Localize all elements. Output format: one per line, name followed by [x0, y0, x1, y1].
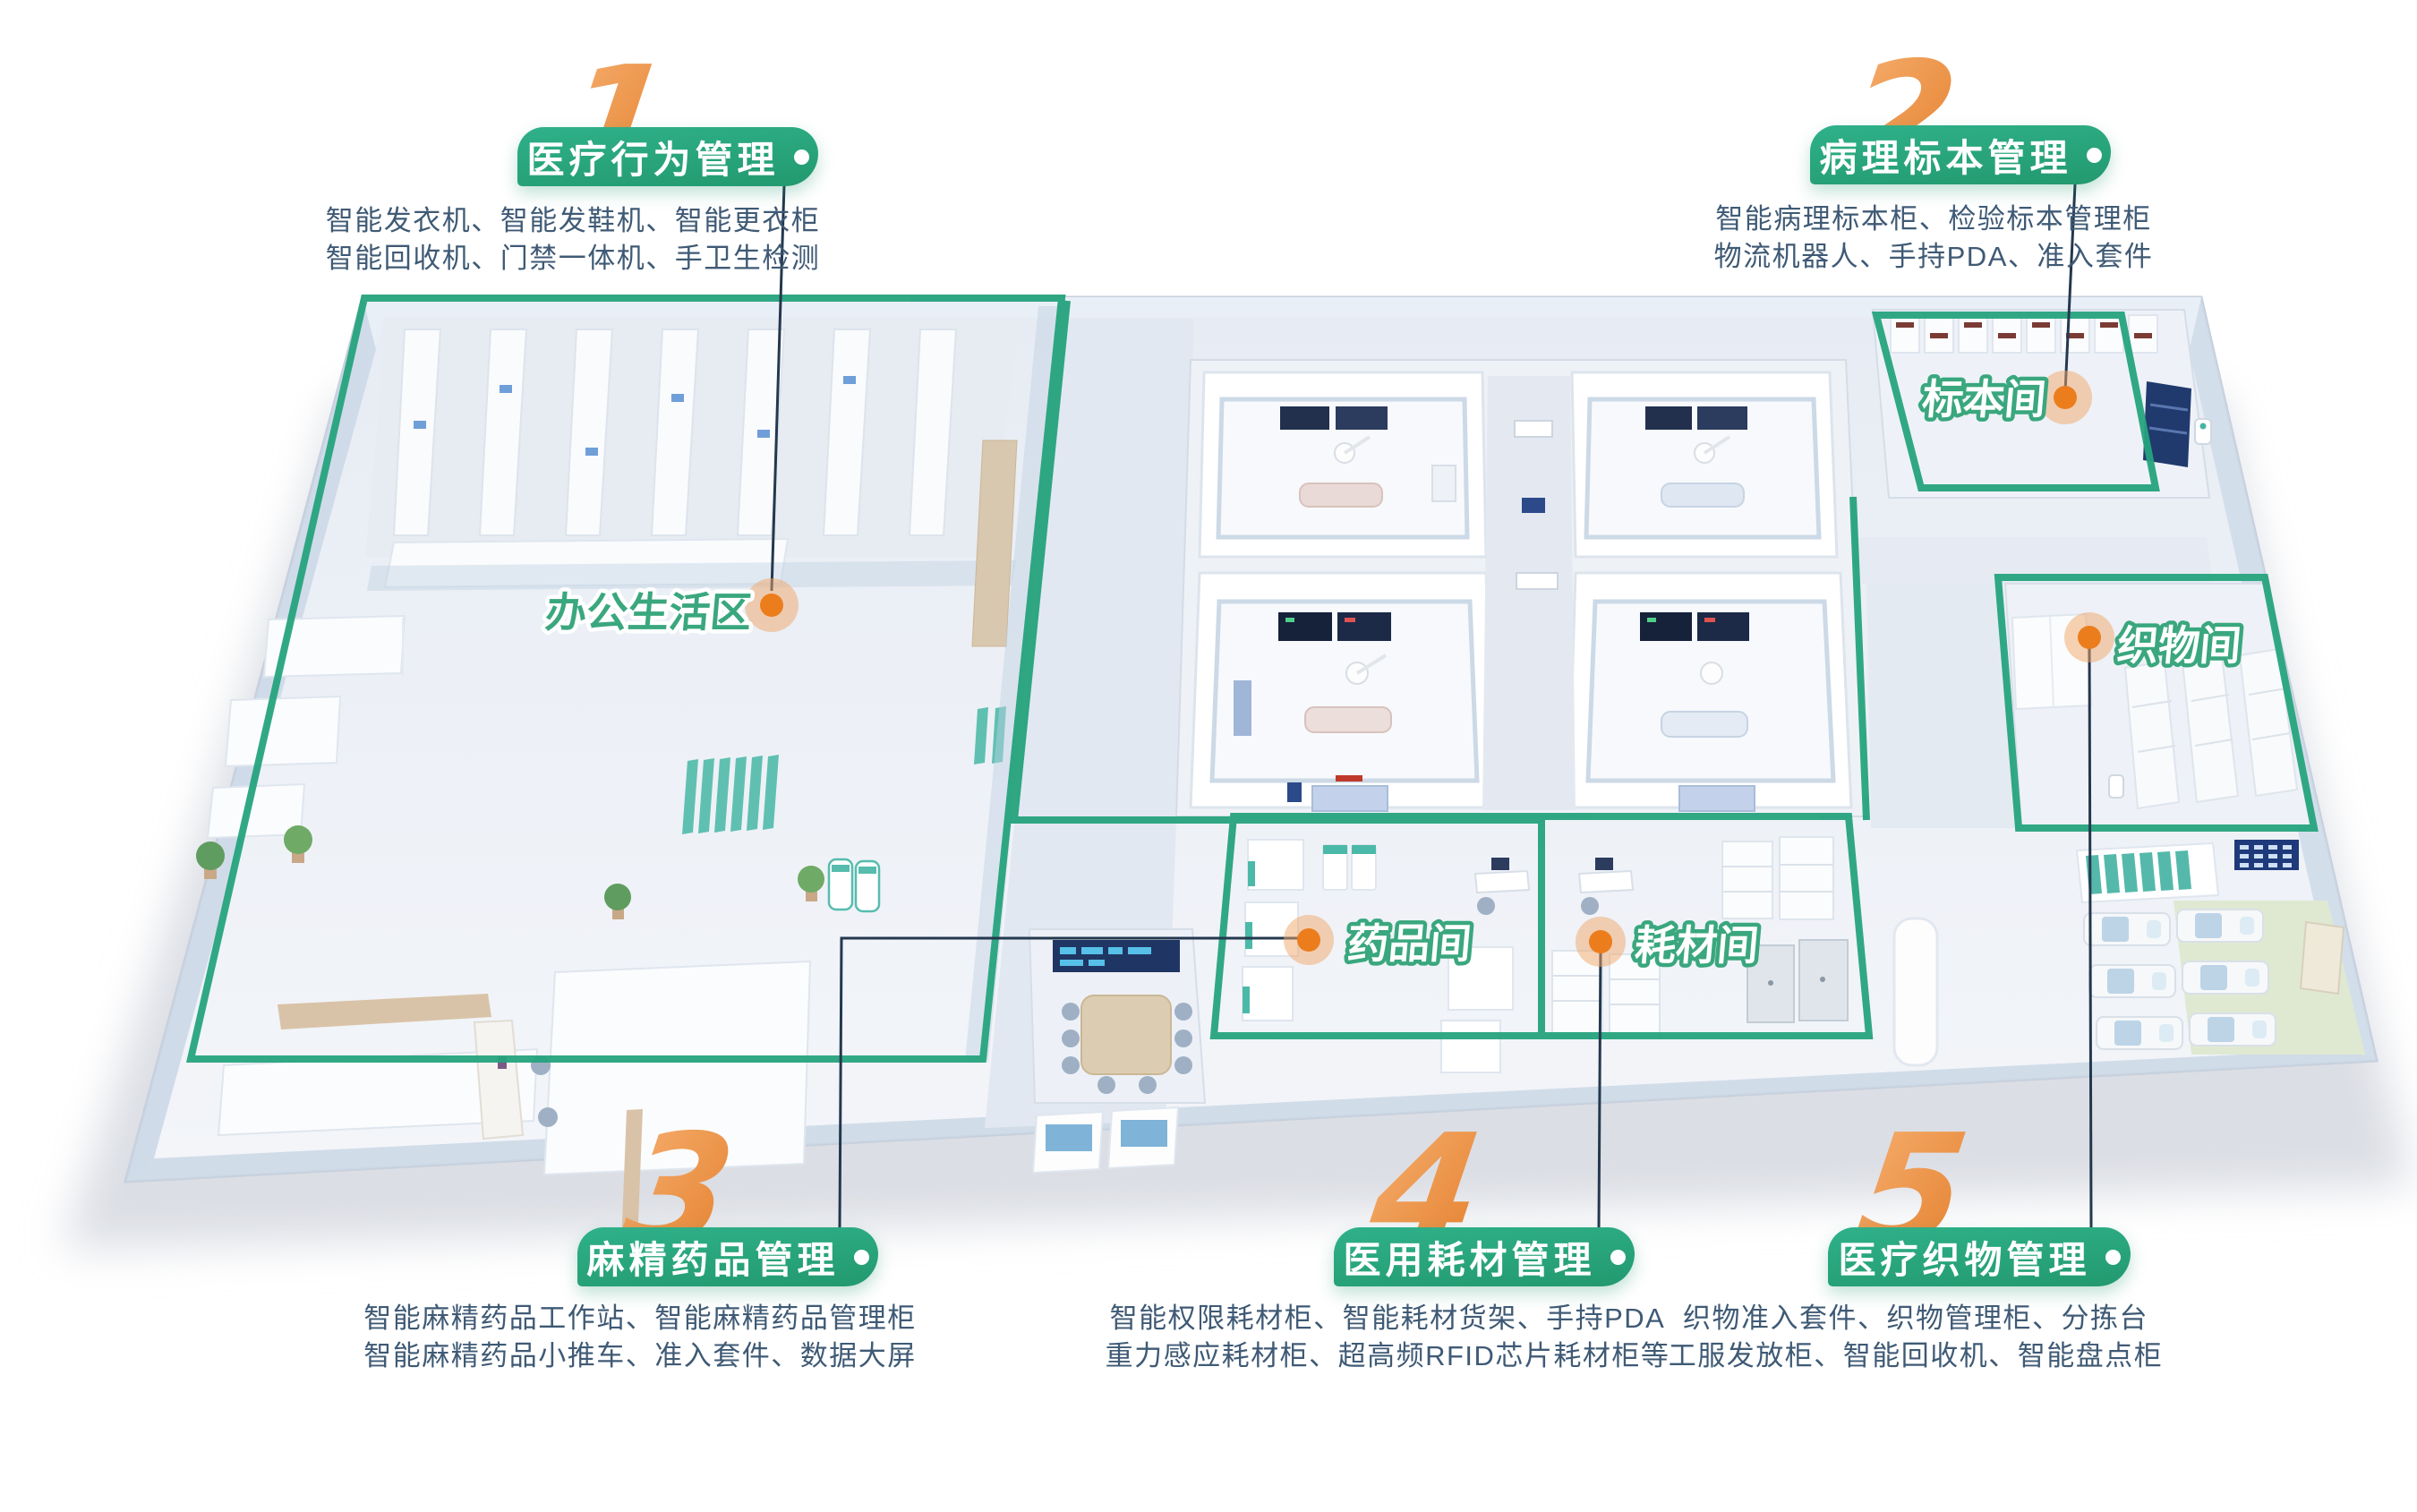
desc-line: 重力感应耗材柜、超高频RFID芯片耗材柜等 — [1101, 1337, 1674, 1375]
desc-line: 工服发放柜、智能回收机、智能盘点柜 — [1629, 1337, 2202, 1375]
room-label-office-life: 办公生活区 — [543, 589, 754, 636]
section-title: 医用耗材管理 — [1343, 1230, 1595, 1285]
dot-consumables — [1576, 917, 1626, 967]
desc-line: 物流机器人、手持PDA、准入套件 — [1665, 238, 2202, 276]
pill-dot — [2105, 1250, 2121, 1265]
connector-5 — [2089, 643, 2091, 1228]
operating-block — [1176, 360, 1867, 816]
section-desc-narcotic-drug: 智能麻精药品工作站、智能麻精药品管理柜 智能麻精药品小推车、准入套件、数据大屏 — [354, 1300, 927, 1375]
section-title: 医疗行为管理 — [526, 130, 779, 184]
pill-dot — [1610, 1250, 1626, 1265]
dot-fabric — [2064, 612, 2114, 662]
desc-line: 智能病理标本柜、检验标本管理柜 — [1665, 201, 2202, 238]
pill-dot — [2087, 148, 2102, 163]
section-pill-medical-behavior: 医疗行为管理 — [517, 127, 818, 186]
room-label-consumables: 耗材间 — [1633, 922, 1761, 969]
desc-line: 智能权限耗材柜、智能耗材货架、手持PDA — [1101, 1300, 1674, 1337]
room-label-specimen: 标本间 — [1920, 376, 2048, 423]
smart-hospital-infographic: { "title": "智慧医院平面分区示意图", "colors": { "p… — [0, 0, 2417, 1512]
desc-line: 智能麻精药品小推车、准入套件、数据大屏 — [354, 1337, 927, 1375]
section-desc-medical-behavior: 智能发衣机、智能发鞋机、智能更衣柜 智能回收机、门禁一体机、手卫生检测 — [304, 202, 841, 278]
section-desc-pathology-specimen: 智能病理标本柜、检验标本管理柜 物流机器人、手持PDA、准入套件 — [1665, 201, 2202, 276]
connector-4 — [1599, 945, 1601, 1228]
desc-line: 智能发衣机、智能发鞋机、智能更衣柜 — [304, 202, 841, 240]
desc-line: 织物准入套件、织物管理柜、分拣台 — [1629, 1300, 2202, 1337]
dot-pharmacy — [1284, 915, 1334, 965]
section-title: 病理标本管理 — [1819, 128, 2071, 183]
section-pill-medical-consumables: 医用耗材管理 — [1334, 1227, 1635, 1286]
section-pill-pathology-specimen: 病理标本管理 — [1810, 125, 2111, 184]
section-title: 麻精药品管理 — [586, 1230, 839, 1285]
pill-dot — [794, 149, 809, 165]
room-label-fabric: 织物间 — [2115, 622, 2243, 669]
dot-office-life — [745, 578, 799, 632]
section-desc-medical-fabric: 织物准入套件、织物管理柜、分拣台 工服发放柜、智能回收机、智能盘点柜 — [1629, 1300, 2202, 1375]
section-pill-narcotic-drug: 麻精药品管理 — [577, 1227, 878, 1286]
section-pill-medical-fabric: 医疗织物管理 — [1828, 1227, 2131, 1286]
section-desc-medical-consumables: 智能权限耗材柜、智能耗材货架、手持PDA 重力感应耗材柜、超高频RFID芯片耗材… — [1101, 1300, 1674, 1375]
desc-line: 智能回收机、门禁一体机、手卫生检测 — [304, 240, 841, 278]
pill-dot — [854, 1250, 869, 1265]
waiting-sofa — [1894, 918, 1937, 1065]
section-title: 医疗织物管理 — [1838, 1230, 2090, 1285]
room-label-pharmacy: 药品间 — [1345, 920, 1473, 967]
fabric-room — [2005, 584, 2311, 825]
desc-line: 智能麻精药品工作站、智能麻精药品管理柜 — [354, 1300, 927, 1337]
conference-room — [1029, 929, 1205, 1103]
